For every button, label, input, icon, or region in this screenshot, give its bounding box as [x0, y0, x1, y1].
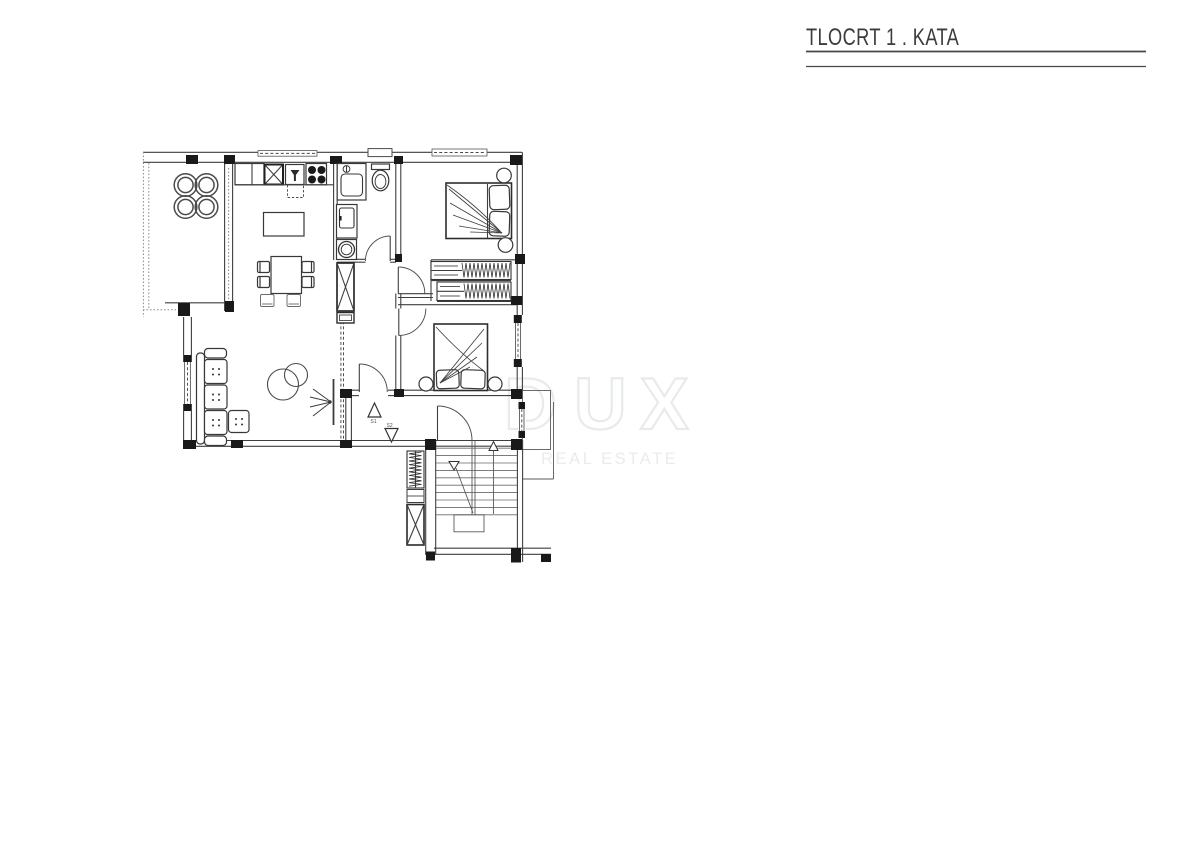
- svg-text:REAL ESTATE: REAL ESTATE: [541, 450, 678, 468]
- svg-text:D: D: [504, 364, 557, 445]
- svg-text:X: X: [640, 364, 689, 445]
- svg-text:U: U: [574, 364, 627, 445]
- svg-text:S1: S1: [371, 419, 377, 425]
- svg-text:TLOCRT 1 . KATA: TLOCRT 1 . KATA: [806, 24, 960, 51]
